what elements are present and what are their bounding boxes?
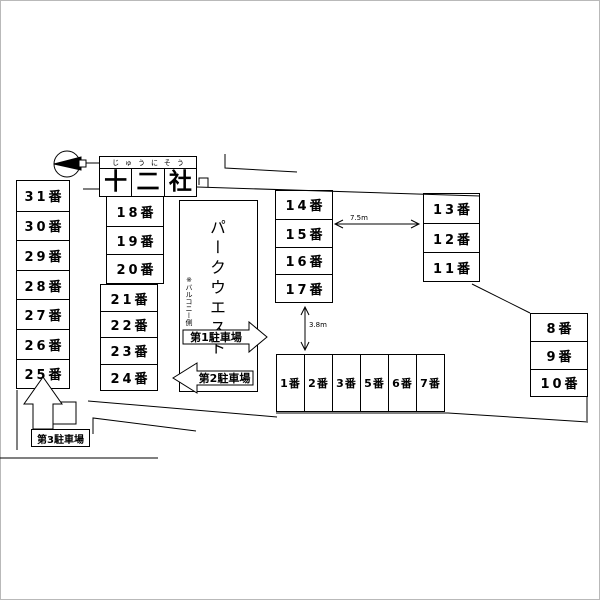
parking-space: 25番 [17,359,69,389]
road-width-arrow [411,220,419,228]
middle-lower-parking-column: 21番 22番 23番 24番 [100,284,158,391]
title-kanji: 社 [164,169,196,196]
parking-space: 22番 [101,311,157,337]
road-line [93,418,196,434]
north-arrow-icon [54,151,80,177]
parking-space: 31番 [17,181,69,211]
parking-space: 14番 [276,191,332,219]
inner-right-parking-column: 14番 15番 16番 17番 [275,190,333,303]
parking-space: 21番 [101,285,157,311]
parking-space: 13番 [424,194,479,223]
parking-space: 9番 [531,341,587,368]
road-line [50,402,76,424]
parking-space: 6番 [388,355,416,411]
road-line [276,413,588,422]
outer-right-parking-column: 13番 12番 11番 [423,193,480,282]
parking-space: 24番 [101,364,157,390]
parking-space: 5番 [360,355,388,411]
aisle-width-arrow [301,342,309,350]
parking-space: 7番 [416,355,444,411]
parking-space: 20番 [107,254,163,283]
aisle-width-arrow [301,307,309,315]
parking-space: 30番 [17,211,69,241]
road-line [88,401,277,417]
aisle-width-label: 3.8m [309,321,327,329]
parking-space: 18番 [107,197,163,226]
road-width-label: 7.5m [350,214,368,222]
north-arrow-icon [54,157,81,170]
bottom-parking-row: 1番 2番 3番 5番 6番 7番 [276,354,445,412]
north-arrow-icon [79,160,86,167]
parking-space: 2番 [304,355,332,411]
title-kanji: 十 [100,169,131,196]
building-name: パークウエスト [204,219,228,383]
parking-space: 23番 [101,337,157,363]
parking-space: 28番 [17,270,69,300]
parking-space: 3番 [332,355,360,411]
far-right-parking-column: 8番 9番 10番 [530,313,588,397]
parking-space: 8番 [531,314,587,341]
left-parking-column: 31番 30番 29番 28番 27番 26番 25番 [16,180,70,389]
road-line [225,154,297,172]
road-line [472,284,530,313]
parking-space: 17番 [276,274,332,302]
parking-space: 1番 [277,355,304,411]
parking-space: 16番 [276,247,332,275]
parking-space: 10番 [531,369,587,396]
title-kanji: 二 [131,169,163,196]
lot3-label: 第3駐車場 [31,429,90,447]
parking-map: じゅうにそう 十 二 社 31番 30番 29番 28番 27番 26番 25番… [0,0,600,600]
site-name-title: 十 二 社 [99,168,197,197]
parking-space: 11番 [424,252,479,281]
lot2-label: 第2駐車場 [197,372,252,385]
middle-upper-parking-column: 18番 19番 20番 [106,196,164,284]
road-line [199,178,208,187]
parking-space: 29番 [17,240,69,270]
lot1-label: 第1駐車場 [185,331,247,344]
parking-space: 12番 [424,223,479,252]
parking-space: 26番 [17,329,69,359]
road-width-arrow [335,220,343,228]
parking-space: 15番 [276,219,332,247]
parking-space: 27番 [17,299,69,329]
parking-space: 19番 [107,226,163,255]
